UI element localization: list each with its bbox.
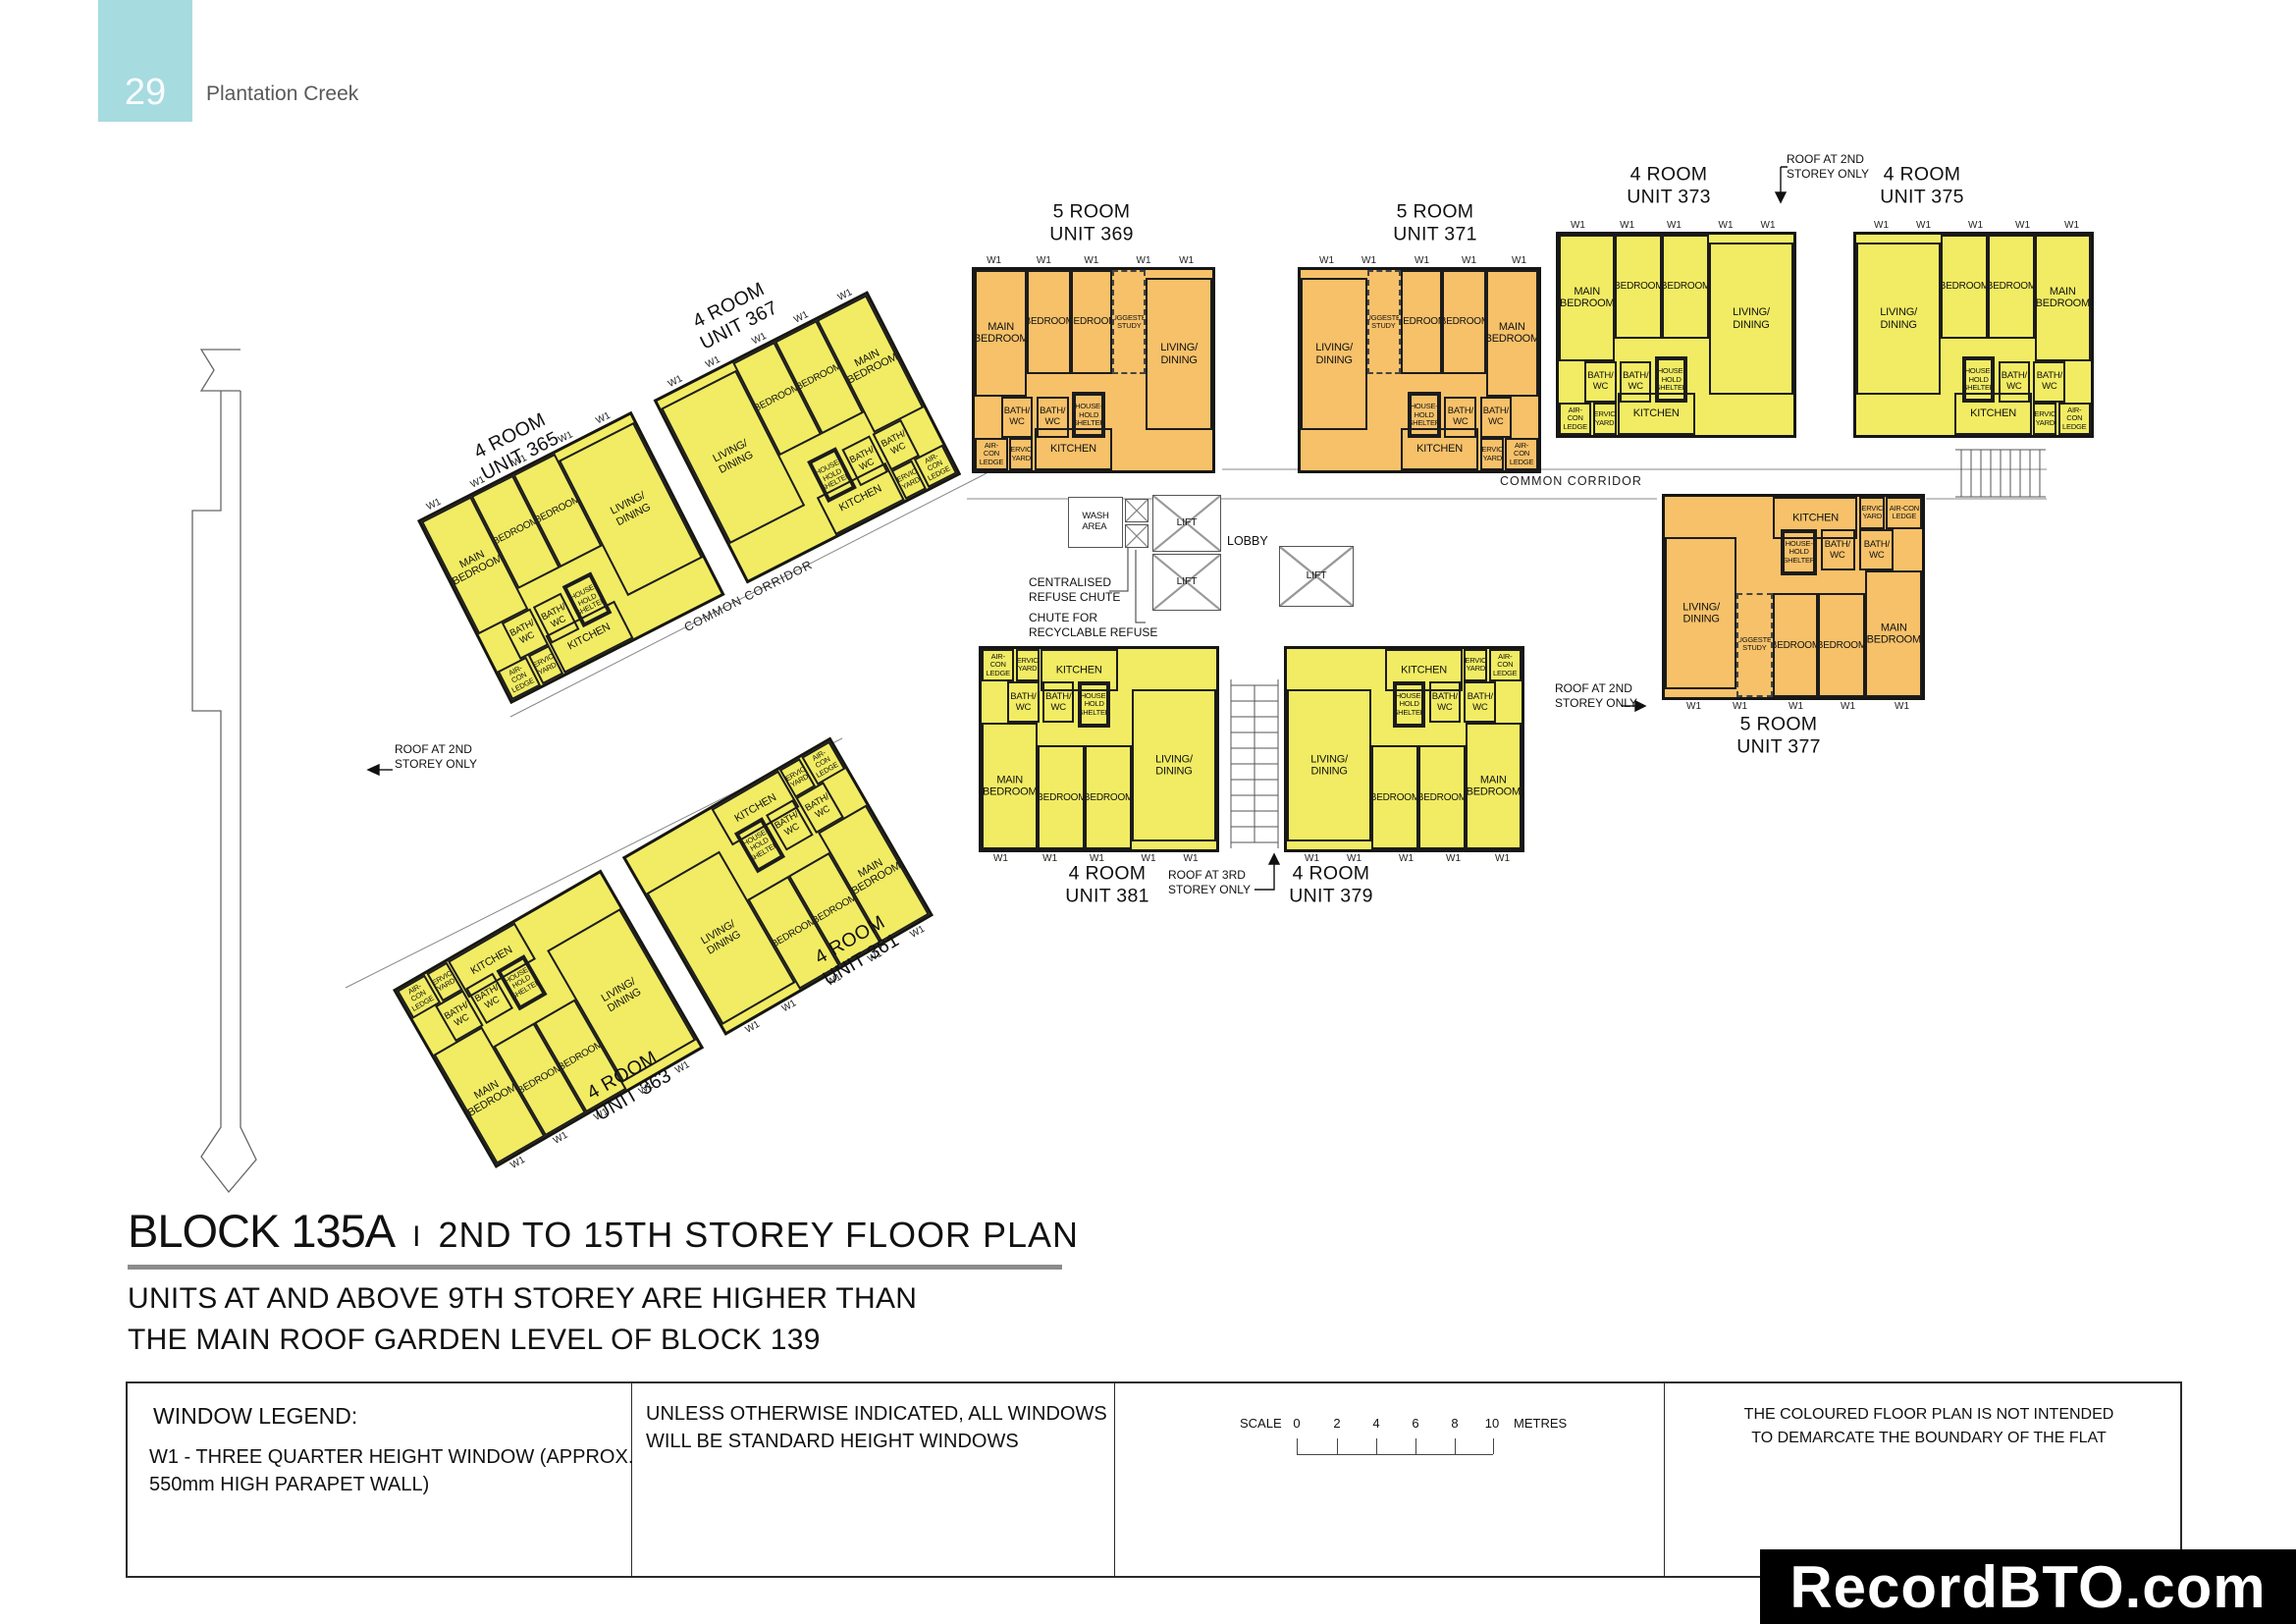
window-w1-label: W1 — [1512, 255, 1526, 266]
window-legend-heading: WINDOW LEGEND: — [153, 1403, 357, 1430]
scale-bar-tick — [1337, 1438, 1338, 1454]
window-w1-label: W1 — [1968, 220, 1983, 231]
scale-bar-tick — [1297, 1438, 1298, 1454]
room-aircon-ledge: AIR-CON LEDGE — [1559, 403, 1591, 435]
room-main-bedroom: MAIN BEDROOM — [1486, 270, 1538, 397]
window-w1-label: W1 — [1667, 220, 1682, 231]
scale-tick-value: 0 — [1293, 1416, 1300, 1431]
room-service-yard: SERVICE YARD — [1480, 438, 1504, 470]
floor-plan-page: 29 Plantation Creek — [0, 0, 2296, 1624]
scale-bar-tick — [1455, 1438, 1456, 1454]
room-bath-wc: BATH/ WC — [1480, 397, 1513, 439]
scale-bar-tick — [1493, 1438, 1494, 1454]
watermark-banner: RecordBTO.com — [1760, 1549, 2296, 1624]
room-bedroom: BEDROOM — [1038, 745, 1085, 849]
lobby-label: LOBBY — [1227, 534, 1268, 550]
window-w1-label: W1 — [1319, 255, 1334, 266]
room-bedroom: BEDROOM — [1027, 270, 1071, 374]
storey-note-line1: UNITS AT AND ABOVE 9TH STOREY ARE HIGHER… — [128, 1282, 917, 1316]
window-w1-label: W1 — [2064, 220, 2079, 231]
title-divider: I — [412, 1220, 420, 1258]
legend-table: WINDOW LEGEND: W1 - THREE QUARTER HEIGHT… — [126, 1381, 2182, 1578]
room-kitchen: KITCHEN — [1035, 428, 1113, 470]
room-living-dining: LIVING/ DINING — [1132, 689, 1216, 841]
room-bedroom: BEDROOM — [1818, 593, 1865, 697]
title-underline — [128, 1265, 1062, 1270]
scale-tick-value: 10 — [1485, 1416, 1499, 1431]
room-suggested-study: SUGGESTED STUDY — [1367, 270, 1401, 374]
lift-3: LIFT — [1279, 546, 1354, 607]
room-aircon-ledge: AIR-CON LEDGE — [1489, 649, 1522, 681]
window-w1-label: W1 — [1841, 701, 1855, 712]
roof-2nd-storey-note-left: ROOF AT 2ND STOREY ONLY — [395, 742, 477, 772]
block-title: BLOCK 135A — [128, 1204, 395, 1258]
room-aircon-ledge: AIR-CON LEDGE — [982, 649, 1014, 681]
room-bath-wc: BATH/ WC — [1584, 361, 1616, 404]
legend-divider — [1114, 1383, 1115, 1576]
scale-bar-tick — [1376, 1438, 1377, 1454]
window-w1-label: W1 — [1495, 853, 1510, 864]
unit-371: W1 W1 W1 W1 W1 MAIN BEDROOM BEDROOM BEDR… — [1298, 267, 1541, 473]
room-bedroom: BEDROOM — [1418, 745, 1466, 849]
window-w1-label: W1 — [1620, 220, 1634, 231]
room-bedroom: BEDROOM — [1988, 235, 2035, 339]
window-w1-label: W1 — [1719, 220, 1734, 231]
room-living-dining: LIVING/ DINING — [1287, 689, 1371, 841]
room-bedroom: BEDROOM — [1071, 270, 1112, 374]
room-kitchen: KITCHEN — [1401, 428, 1479, 470]
unit-375: W1 W1 W1 W1 W1 MAIN BEDROOM BEDROOM BEDR… — [1853, 232, 2094, 438]
room-suggested-study: SUGGESTED STUDY — [1736, 593, 1773, 697]
window-w1-label: W1 — [1137, 255, 1151, 266]
window-w1-label: W1 — [1446, 853, 1461, 864]
scale-bar-tick — [1415, 1438, 1416, 1454]
room-bedroom: BEDROOM — [1615, 235, 1662, 339]
unit-title-373: 4 ROOMUNIT 373 — [1627, 164, 1711, 210]
window-w1-label: W1 — [2015, 220, 2030, 231]
roof-2nd-storey-note-right: ROOF AT 2ND STOREY ONLY — [1555, 681, 1637, 711]
room-main-bedroom: MAIN BEDROOM — [1559, 235, 1615, 361]
room-kitchen: KITCHEN — [1954, 393, 2032, 435]
unit-title-375: 4 ROOMUNIT 375 — [1880, 164, 1964, 210]
room-service-yard: SERVICE YARD — [2033, 403, 2056, 435]
unit-377: W1 W1 W1 W1 W1 MAIN BEDROOM BEDROOM BEDR… — [1662, 494, 1925, 700]
room-aircon-ledge: AIR-CON LEDGE — [1886, 497, 1922, 529]
window-w1-label: W1 — [993, 853, 1008, 864]
scale-tick-value: 6 — [1412, 1416, 1418, 1431]
window-w1-label: W1 — [1874, 220, 1889, 231]
room-main-bedroom: MAIN BEDROOM — [2035, 235, 2091, 361]
refuse-chute-label: CENTRALISED REFUSE CHUTE — [1029, 575, 1120, 605]
room-bath-wc: BATH/ WC — [1464, 681, 1495, 724]
unit-373: W1 W1 W1 W1 W1 MAIN BEDROOM BEDROOM BEDR… — [1556, 232, 1796, 438]
room-living-dining: LIVING/ DINING — [1146, 278, 1212, 430]
room-bedroom: BEDROOM — [1371, 745, 1418, 849]
lift-2: LIFT — [1152, 554, 1221, 611]
room-kitchen: KITCHEN — [1773, 497, 1857, 539]
unit-title-369: 5 ROOMUNIT 369 — [1049, 201, 1134, 247]
plan-title-row: BLOCK 135A I 2ND TO 15TH STOREY FLOOR PL… — [128, 1204, 1079, 1258]
window-w1-label: W1 — [1362, 255, 1376, 266]
unit-title-377: 5 ROOMUNIT 377 — [1736, 714, 1821, 760]
window-w1-label: W1 — [1179, 255, 1194, 266]
roof-3rd-storey-note: ROOF AT 3RD STOREY ONLY — [1168, 868, 1251, 897]
room-living-dining: LIVING/ DINING — [1665, 537, 1736, 689]
recycle-chute-label: CHUTE FOR RECYCLABLE REFUSE — [1029, 611, 1157, 640]
coloured-plan-disclaimer: THE COLOURED FLOOR PLAN IS NOT INTENDED … — [1713, 1403, 2145, 1450]
unit-379: W1 W1 W1 W1 W1 MAIN BEDROOM BEDROOM BEDR… — [1284, 646, 1524, 852]
room-bath-wc: BATH/ WC — [2033, 361, 2064, 404]
room-living-dining: LIVING/ DINING — [1709, 243, 1793, 395]
common-corridor-label: COMMON CORRIDOR — [1500, 474, 1642, 488]
room-bedroom: BEDROOM — [1773, 593, 1818, 697]
scale-label: SCALE — [1240, 1416, 1282, 1431]
watermark-text: RecordBTO.com — [1789, 1553, 2266, 1621]
room-bath-wc: BATH/ WC — [1859, 529, 1894, 571]
room-bedroom: BEDROOM — [1442, 270, 1486, 374]
lift-1: LIFT — [1152, 495, 1221, 552]
window-w1-label: W1 — [1042, 853, 1057, 864]
window-w1-label: W1 — [1761, 220, 1776, 231]
chute-cross-icon — [1126, 525, 1148, 547]
unit-title-371: 5 ROOMUNIT 371 — [1393, 201, 1477, 247]
room-living-dining: LIVING/ DINING — [1301, 278, 1367, 430]
standard-window-note-line1: UNLESS OTHERWISE INDICATED, ALL WINDOWS — [646, 1403, 1107, 1426]
window-w1-label: W1 — [1686, 701, 1701, 712]
window-w1-label: W1 — [1895, 701, 1909, 712]
room-kitchen: KITCHEN — [1618, 393, 1695, 435]
room-service-yard: SERVICE YARD — [1859, 497, 1885, 529]
window-w1-label: W1 — [1916, 220, 1931, 231]
room-kitchen: KITCHEN — [1385, 649, 1463, 691]
window-w1-label: W1 — [1733, 701, 1747, 712]
room-bedroom: BEDROOM — [1085, 745, 1132, 849]
room-bath-wc: BATH/ WC — [1001, 397, 1034, 439]
window-w1-label: W1 — [1789, 701, 1803, 712]
window-w1-label: W1 — [987, 255, 1001, 266]
window-w1-label: W1 — [1571, 220, 1585, 231]
window-w1-label: W1 — [1462, 255, 1476, 266]
window-w1-label: W1 — [1084, 255, 1098, 266]
storey-note-line2: THE MAIN ROOF GARDEN LEVEL OF BLOCK 139 — [128, 1324, 821, 1357]
scale-tick-value: 2 — [1333, 1416, 1340, 1431]
storey-plan-title: 2ND TO 15TH STOREY FLOOR PLAN — [439, 1215, 1080, 1258]
window-legend-w1-line2: 550mm HIGH PARAPET WALL) — [149, 1474, 429, 1496]
window-w1-label: W1 — [1415, 255, 1429, 266]
room-service-yard: SERVICE YARD — [1016, 649, 1040, 681]
scale-bar-baseline — [1297, 1454, 1493, 1455]
window-legend-w1-line1: W1 - THREE QUARTER HEIGHT WINDOW (APPROX… — [149, 1446, 633, 1469]
wash-area: WASH AREA — [1068, 497, 1123, 548]
room-main-bedroom: MAIN BEDROOM — [1466, 723, 1522, 849]
window-w1-label: W1 — [1399, 853, 1414, 864]
window-w1-label: W1 — [1184, 853, 1199, 864]
refuse-chute-shaft — [1125, 499, 1148, 522]
room-aircon-ledge: AIR-CON LEDGE — [2058, 403, 2091, 435]
unit-title-379: 4 ROOMUNIT 379 — [1289, 863, 1373, 909]
scale-tick-value: 4 — [1372, 1416, 1379, 1431]
chute-cross-icon — [1126, 500, 1148, 521]
room-service-yard: SERVICE YARD — [1464, 649, 1487, 681]
unit-title-381: 4 ROOMUNIT 381 — [1065, 863, 1149, 909]
room-main-bedroom: MAIN BEDROOM — [1865, 570, 1922, 697]
room-service-yard: SERVICE YARD — [1593, 403, 1617, 435]
unit-381: W1 W1 W1 W1 W1 MAIN BEDROOM BEDROOM BEDR… — [979, 646, 1219, 852]
scale-tick-value: 8 — [1451, 1416, 1458, 1431]
scale-unit: METRES — [1514, 1416, 1567, 1431]
room-main-bedroom: MAIN BEDROOM — [982, 723, 1038, 849]
legend-divider — [631, 1383, 632, 1576]
standard-window-note-line2: WILL BE STANDARD HEIGHT WINDOWS — [646, 1431, 1019, 1453]
legend-divider — [1664, 1383, 1665, 1576]
room-bedroom: BEDROOM — [1401, 270, 1442, 374]
room-main-bedroom: MAIN BEDROOM — [975, 270, 1027, 397]
room-suggested-study: SUGGESTED STUDY — [1112, 270, 1146, 374]
room-aircon-ledge: AIR-CON LEDGE — [1505, 438, 1538, 470]
recycle-chute-shaft — [1125, 524, 1148, 548]
room-bedroom: BEDROOM — [1662, 235, 1709, 339]
room-aircon-ledge: AIR-CON LEDGE — [975, 438, 1008, 470]
unit-369: W1 W1 W1 W1 W1 MAIN BEDROOM BEDROOM BEDR… — [972, 267, 1215, 473]
roof-2nd-storey-note-top: ROOF AT 2ND STOREY ONLY — [1787, 152, 1869, 182]
room-service-yard: SERVICE YARD — [1009, 438, 1033, 470]
room-living-dining: LIVING/ DINING — [1856, 243, 1941, 395]
room-bedroom: BEDROOM — [1941, 235, 1988, 339]
room-kitchen: KITCHEN — [1041, 649, 1118, 691]
room-bath-wc: BATH/ WC — [1007, 681, 1039, 724]
window-w1-label: W1 — [1037, 255, 1051, 266]
